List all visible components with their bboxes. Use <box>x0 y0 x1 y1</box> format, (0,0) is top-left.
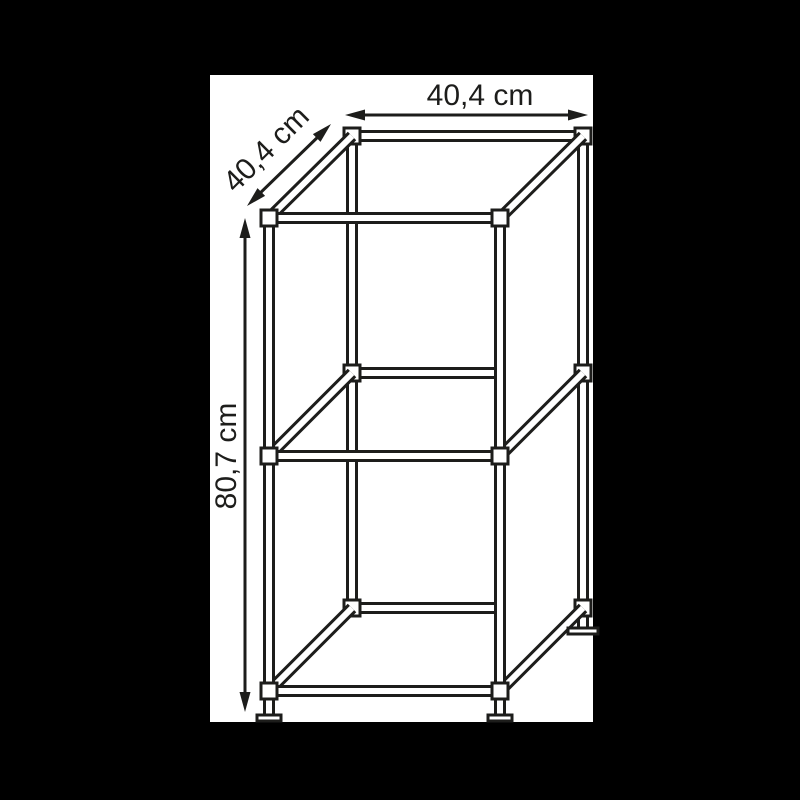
connector-node <box>492 448 508 464</box>
connector-node <box>492 210 508 226</box>
connector-node <box>261 210 277 226</box>
connector-node <box>492 683 508 699</box>
height-dimension-label: 80,7 cm <box>210 403 243 510</box>
back-right-foot-glide <box>568 628 598 634</box>
front-right-foot-glide <box>488 715 512 721</box>
connector-node <box>261 448 277 464</box>
diagram-svg: 40,4 cm 40,4 cm 80,7 cm <box>0 0 800 800</box>
front-left-foot-glide <box>257 715 281 721</box>
connector-node <box>261 683 277 699</box>
shelf-dimension-diagram: 40,4 cm 40,4 cm 80,7 cm <box>0 0 800 800</box>
width-dimension-label: 40,4 cm <box>427 79 534 112</box>
